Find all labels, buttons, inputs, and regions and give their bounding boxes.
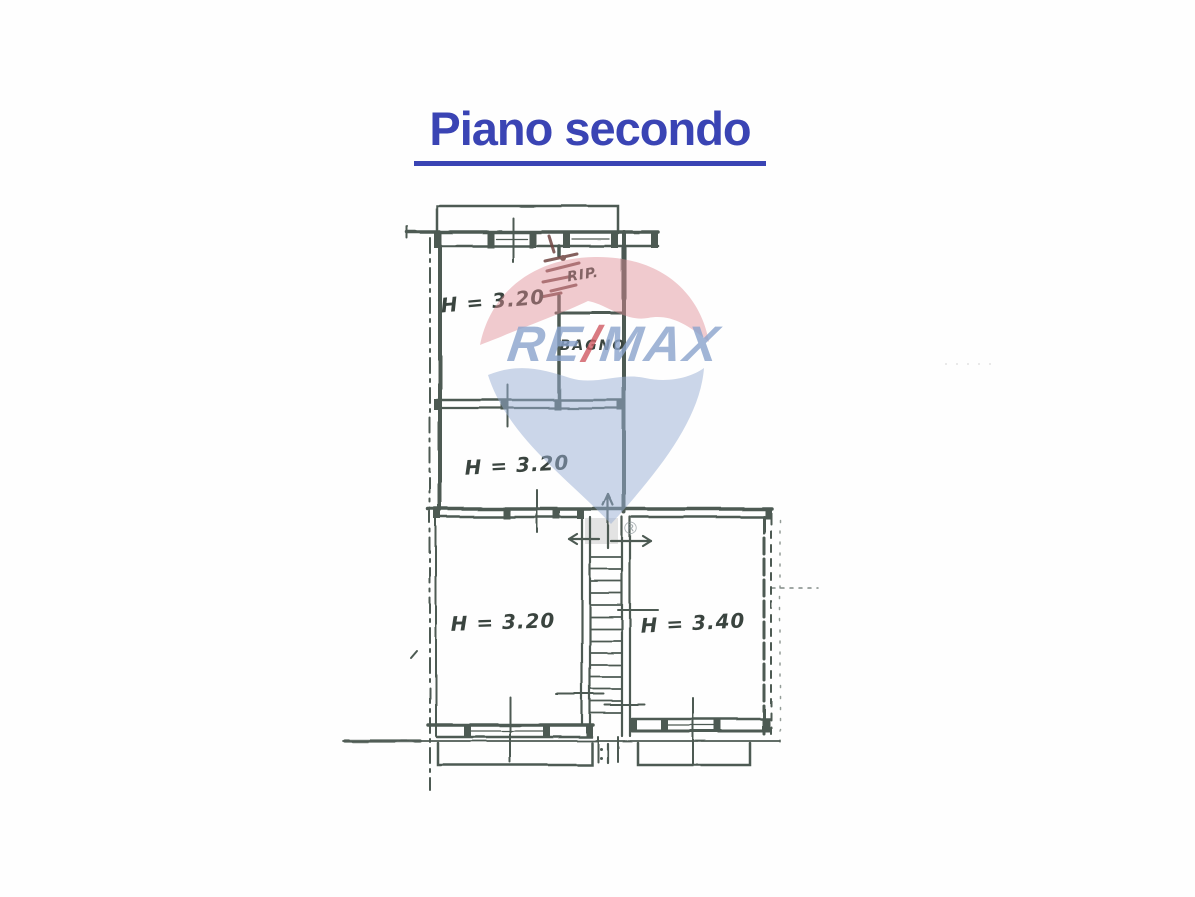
scanned-floor-plan-page: H = 3.20 RIP. BAGNO H = 3.20 H = 3.20 H … (0, 0, 1195, 897)
plan-walls (343, 206, 818, 790)
page-title: Piano secondo (414, 101, 766, 166)
room-label-bathroom: BAGNO (557, 338, 629, 354)
room-label-lower-left: H = 3.20 (448, 608, 559, 636)
stair-treads (591, 557, 621, 713)
